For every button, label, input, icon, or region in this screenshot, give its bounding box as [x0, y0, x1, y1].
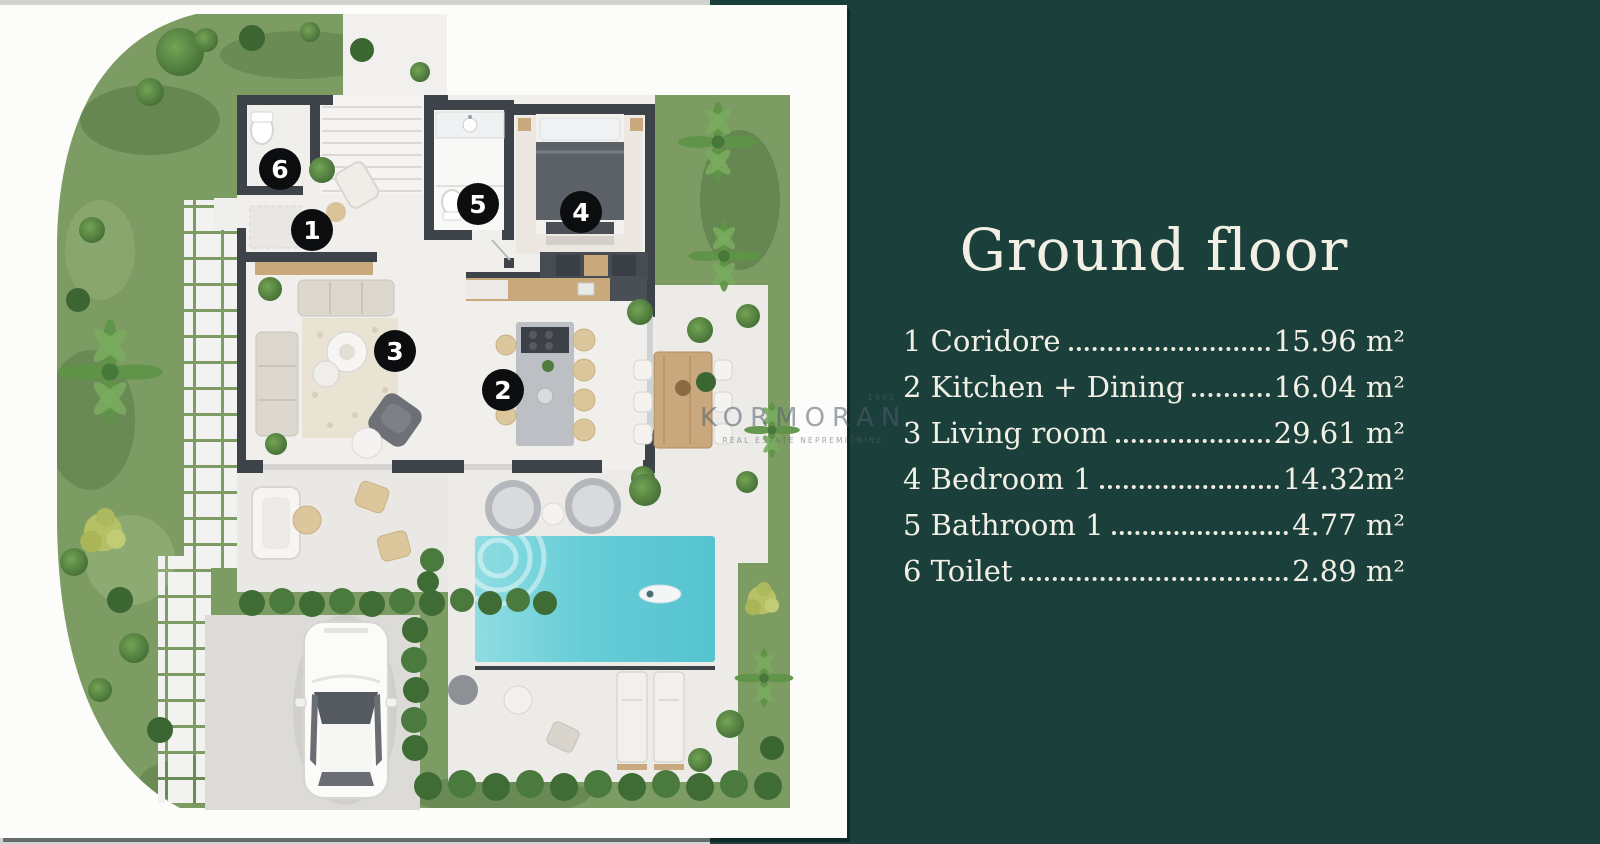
room-badge-5-number: 5: [469, 190, 486, 219]
legend-room-name: Coridore: [931, 324, 1061, 358]
floor-plan-illustration: [0, 5, 847, 838]
floor-plan-image: 1 2 3 4 5 6 1992 KORMORAN REAL ESTATE NE…: [0, 5, 847, 838]
legend-label: 1 Coridore: [903, 324, 1061, 358]
legend-area-value: 4.77 m²: [1292, 508, 1405, 542]
legend-row-bedroom-1: 4 Bedroom 1 14.32m²: [903, 462, 1405, 508]
room-badge-6-number: 6: [271, 155, 288, 184]
room-badge-1: 1: [291, 209, 333, 251]
dotted-leader: [1192, 393, 1269, 397]
dotted-leader: [1116, 439, 1270, 443]
legend-room-number: 5: [903, 508, 921, 542]
legend-room-name: Toilet: [931, 554, 1013, 588]
room-badge-2: 2: [482, 369, 524, 411]
room-badge-4-number: 4: [572, 198, 589, 227]
legend-area-value: 16.04 m²: [1274, 370, 1405, 404]
legend-room-name: Bedroom 1: [931, 462, 1092, 496]
legend-room-number: 4: [903, 462, 921, 496]
legend-room-name: Living room: [931, 416, 1108, 450]
legend-room-number: 3: [903, 416, 921, 450]
legend-row-toilet: 6 Toilet 2.89 m²: [903, 554, 1405, 600]
legend-label: 3 Living room: [903, 416, 1108, 450]
legend-row-living-room: 3 Living room 29.61 m²: [903, 416, 1405, 462]
legend-room-number: 2: [903, 370, 921, 404]
room-badge-1-number: 1: [303, 216, 320, 245]
room-badge-3: 3: [374, 330, 416, 372]
dotted-leader: [1021, 577, 1288, 581]
legend-room-name: Kitchen + Dining: [931, 370, 1185, 404]
legend-room-number: 6: [903, 554, 921, 588]
legend-label: 6 Toilet: [903, 554, 1013, 588]
legend-area-value: 29.61 m²: [1274, 416, 1405, 450]
dotted-leader: [1100, 485, 1279, 489]
legend-area-value: 2.89 m²: [1292, 554, 1405, 588]
dotted-leader: [1112, 531, 1289, 535]
legend-label: 5 Bathroom 1: [903, 508, 1104, 542]
room-badge-3-number: 3: [386, 337, 403, 366]
page-title: Ground floor: [903, 214, 1405, 286]
room-badge-5: 5: [457, 183, 499, 225]
room-badge-4: 4: [560, 191, 602, 233]
legend-panel: Ground floor 1 Coridore 15.96 m² 2 Kitch…: [903, 214, 1405, 600]
room-legend: 1 Coridore 15.96 m² 2 Kitchen + Dining 1…: [903, 324, 1405, 600]
room-badge-2-number: 2: [494, 376, 511, 405]
legend-label: 4 Bedroom 1: [903, 462, 1092, 496]
legend-label: 2 Kitchen + Dining: [903, 370, 1184, 404]
legend-room-name: Bathroom 1: [931, 508, 1104, 542]
legend-row-kitchen-dining: 2 Kitchen + Dining 16.04 m²: [903, 370, 1405, 416]
dotted-leader: [1069, 347, 1270, 351]
legend-area-value: 14.32m²: [1283, 462, 1405, 496]
room-badge-6: 6: [259, 148, 301, 190]
legend-room-number: 1: [903, 324, 921, 358]
legend-row-bathroom-1: 5 Bathroom 1 4.77 m²: [903, 508, 1405, 554]
legend-row-coridore: 1 Coridore 15.96 m²: [903, 324, 1405, 370]
legend-area-value: 15.96 m²: [1274, 324, 1405, 358]
